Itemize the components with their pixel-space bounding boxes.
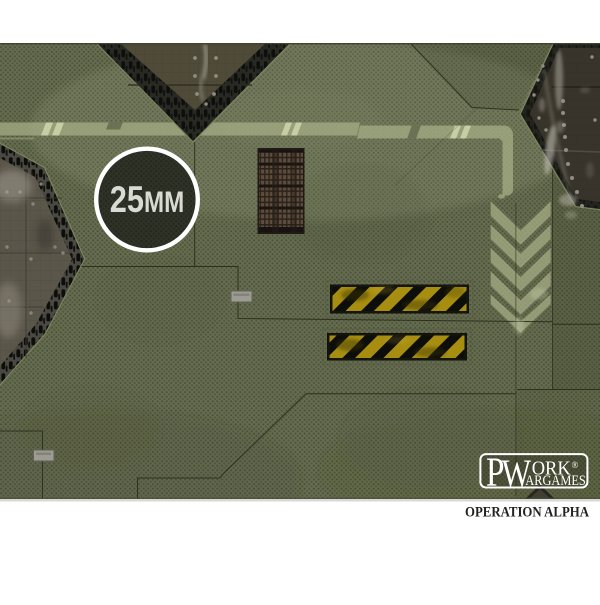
svg-text:25MM: 25MM [110, 179, 184, 221]
svg-text:OPERATION ALPHA: OPERATION ALPHA [465, 505, 589, 521]
svg-text:ARGAMES: ARGAMES [525, 473, 586, 489]
svg-text:®: ® [572, 460, 579, 470]
